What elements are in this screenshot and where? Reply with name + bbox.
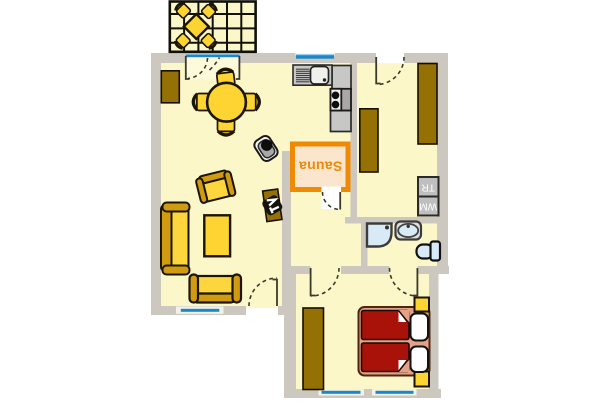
svg-text:WM: WM [419, 201, 437, 212]
svg-text:Sauna: Sauna [299, 159, 343, 175]
svg-text:TR: TR [422, 182, 435, 193]
